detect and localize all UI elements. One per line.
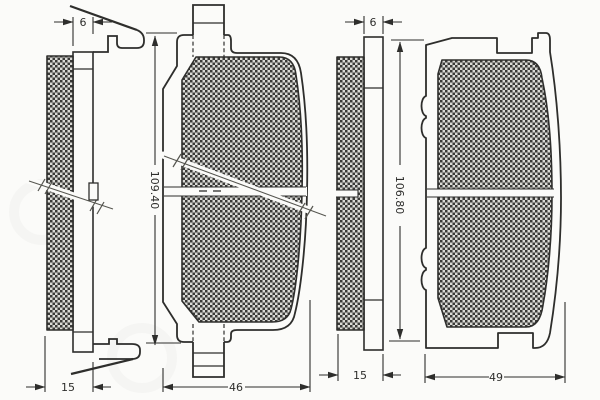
backing-plate: [364, 37, 383, 350]
dim-label-height-right-pad: 106.80: [393, 176, 406, 215]
tab-bottom: [193, 324, 224, 377]
drawing-canvas: 6 15: [0, 0, 600, 400]
groove: [336, 190, 358, 197]
groove: [427, 189, 554, 197]
dim-plate-thickness-right: 6: [345, 16, 402, 34]
dim-label-width-left-pad: 46: [229, 381, 243, 394]
dim-plate-thickness-left: 6: [54, 16, 112, 46]
dim-total-thickness-right: 15: [319, 334, 401, 382]
spring-clip-top: [70, 6, 144, 52]
wear-indicator: [89, 183, 98, 200]
dim-label-width-right-pad: 49: [489, 371, 503, 384]
dim-label-plate-thickness-left: 6: [80, 16, 87, 29]
dim-label-total-thickness-left: 15: [61, 381, 75, 394]
view-right-pad-front: 106.80 49: [389, 33, 565, 384]
dim-height-right-pad: 106.80: [389, 40, 424, 341]
view-right-pad-side: 6 15: [319, 16, 402, 382]
technical-drawing-page: 6 15: [0, 0, 600, 400]
view-left-pad-front: 109.40 46: [146, 5, 327, 394]
dim-label-height-left-pad: 109.40: [148, 171, 161, 210]
dim-label-plate-thickness-right: 6: [370, 16, 377, 29]
dim-label-total-thickness-right: 15: [353, 369, 367, 382]
tab-top: [193, 5, 224, 57]
groove: [164, 187, 307, 196]
